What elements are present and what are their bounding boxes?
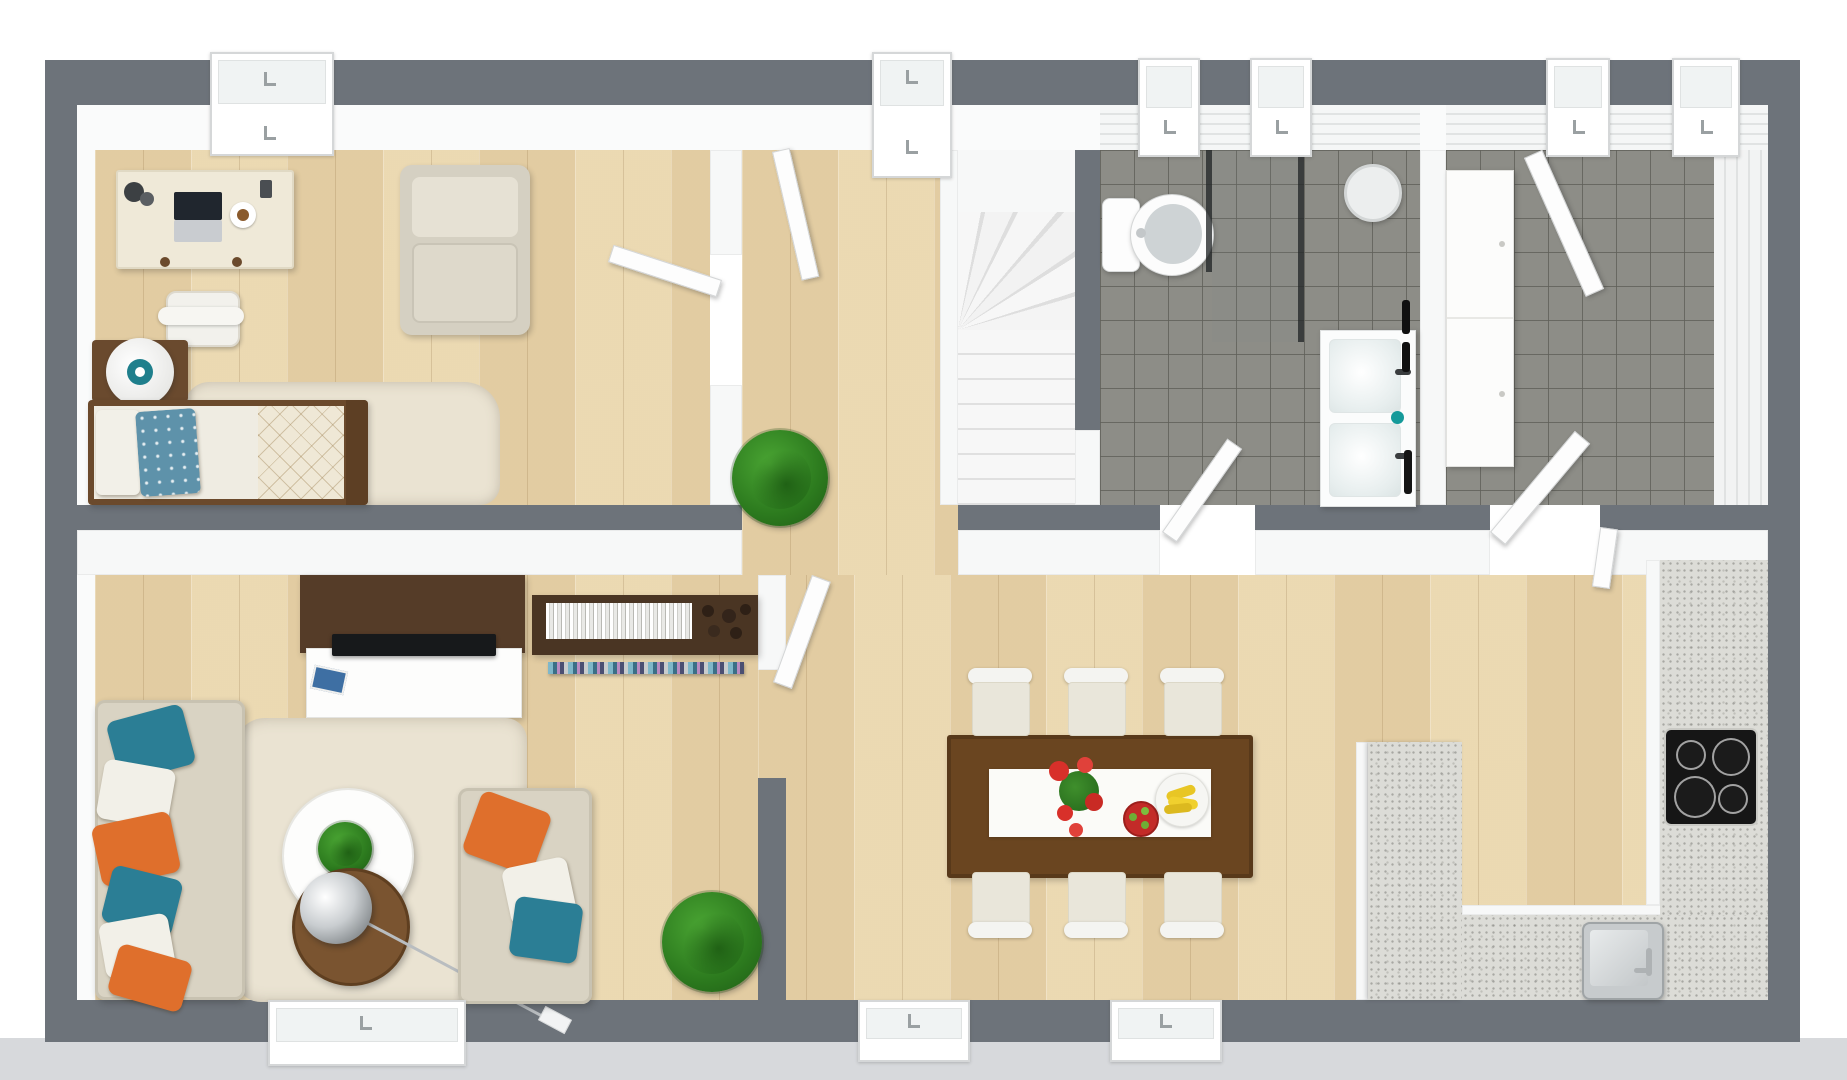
bed-pillow-blue-floral bbox=[135, 408, 201, 497]
middle-wall-bathroom-face bbox=[1255, 530, 1490, 575]
middle-wall-bedroom-face bbox=[77, 530, 742, 575]
kitchen-sink bbox=[1582, 922, 1664, 1000]
bookshelf bbox=[532, 595, 758, 655]
burner-large-2 bbox=[1674, 776, 1716, 818]
desk-gadget bbox=[140, 192, 154, 206]
tv-screen bbox=[332, 634, 496, 656]
middle-wall-bathroom bbox=[1255, 505, 1490, 530]
stair-landing bbox=[958, 150, 1075, 212]
divider-wall-lower bbox=[758, 778, 786, 1000]
bed bbox=[88, 400, 368, 505]
bedroom-east-wall-upper bbox=[710, 150, 742, 255]
pen-holder bbox=[260, 180, 272, 198]
book-row bbox=[546, 603, 692, 639]
sink-basin-2 bbox=[1329, 423, 1401, 497]
right-counter-front bbox=[1646, 560, 1660, 905]
floorplan-render bbox=[0, 0, 1847, 1080]
shelf-ornament-5 bbox=[730, 627, 742, 639]
hallway-plant bbox=[732, 430, 828, 526]
utility-cabinet bbox=[1446, 170, 1514, 467]
living-plant bbox=[662, 892, 762, 992]
banana-plate bbox=[1155, 773, 1209, 827]
fruit-bowl-red bbox=[1123, 801, 1159, 837]
utility-wall-paneling bbox=[1714, 150, 1768, 505]
peninsula-front bbox=[1356, 742, 1368, 1000]
bed-footboard bbox=[346, 400, 368, 505]
dining-chair-3 bbox=[1160, 668, 1224, 738]
middle-wall-stairs bbox=[958, 505, 1160, 530]
burner-small-2 bbox=[1718, 784, 1748, 814]
towel-rail-1 bbox=[1402, 300, 1410, 334]
toilet bbox=[1102, 194, 1214, 274]
shelf-ornament-3 bbox=[740, 604, 751, 615]
dining-window-2 bbox=[1110, 1000, 1222, 1062]
stair-winder-treads bbox=[958, 212, 1075, 330]
towel-rail-2 bbox=[1402, 342, 1410, 372]
dining-chair-6 bbox=[1160, 868, 1224, 938]
shelf-ornament-1 bbox=[702, 605, 714, 617]
peninsula-counter bbox=[1368, 742, 1462, 1000]
desk-chair bbox=[158, 255, 244, 347]
dining-chair-1 bbox=[968, 668, 1032, 738]
dining-chair-5 bbox=[1064, 868, 1128, 938]
bed-pillow-white bbox=[96, 410, 140, 495]
arc-lamp-shade bbox=[300, 872, 372, 944]
entry-door-bay bbox=[872, 52, 952, 178]
cd-shelf-strip bbox=[548, 662, 744, 674]
stair-east-wall bbox=[1075, 150, 1100, 430]
dining-chair-2 bbox=[1064, 668, 1128, 738]
middle-wall-bedroom bbox=[77, 505, 742, 530]
towel-rail-3 bbox=[1404, 450, 1412, 494]
coffee bbox=[237, 209, 249, 221]
living-window bbox=[268, 1000, 466, 1066]
stair-east-wall-stub bbox=[1075, 430, 1100, 505]
bedroom-window bbox=[210, 52, 334, 156]
stair-straight-treads bbox=[958, 330, 1075, 505]
shelf-ornament-2 bbox=[722, 609, 736, 623]
middle-wall-stairs-face bbox=[958, 530, 1160, 575]
laptop bbox=[174, 192, 222, 220]
pillow-teal-3 bbox=[508, 896, 584, 965]
sink-basin-1 bbox=[1329, 339, 1401, 413]
armchair bbox=[400, 165, 530, 335]
shelf-ornament-4 bbox=[708, 625, 720, 637]
burner-large-1 bbox=[1712, 738, 1750, 776]
shower-glass-screen-2 bbox=[1298, 150, 1304, 342]
teal-tumbler bbox=[1391, 411, 1404, 424]
dining-chair-4 bbox=[968, 868, 1032, 938]
utility-window-2 bbox=[1672, 58, 1740, 157]
exterior-wall-left bbox=[45, 60, 77, 1042]
flower-centerpiece bbox=[1049, 757, 1109, 849]
bathroom-window-2 bbox=[1250, 58, 1312, 157]
shower-area bbox=[1212, 150, 1298, 342]
bathroom-utility-wall bbox=[1420, 150, 1446, 505]
bathroom-window-1 bbox=[1138, 58, 1200, 157]
middle-wall-kitchen bbox=[1600, 505, 1768, 530]
utility-window-1 bbox=[1546, 58, 1610, 157]
dining-table bbox=[947, 735, 1253, 878]
dining-window-1 bbox=[858, 1000, 970, 1062]
burner-small-1 bbox=[1676, 740, 1706, 770]
stair-stringer-wall bbox=[940, 150, 958, 505]
bed-duvet bbox=[258, 406, 344, 499]
laptop-keyboard bbox=[174, 220, 222, 242]
exterior-wall-right bbox=[1768, 60, 1800, 1042]
table-lamp bbox=[106, 338, 174, 406]
cooktop bbox=[1666, 730, 1756, 824]
round-mirror bbox=[1344, 164, 1402, 222]
